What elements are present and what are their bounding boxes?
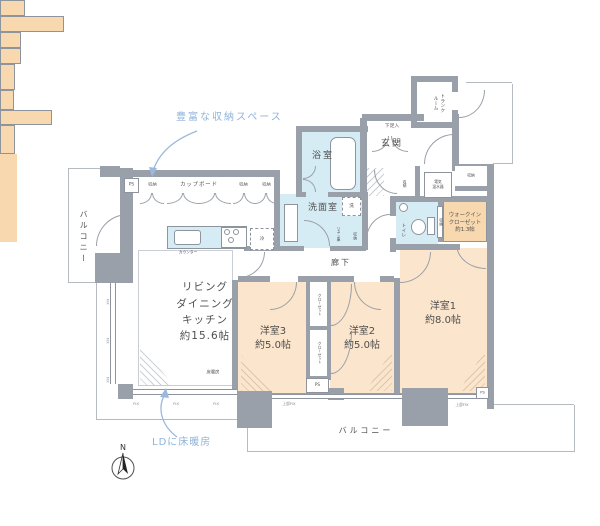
floor-heating-note: LDに床暖房: [152, 435, 230, 450]
wall-segment: [455, 186, 487, 191]
walkin-closet-floor: [443, 200, 487, 242]
balcony-door-arc: [96, 214, 128, 246]
water-heater-box: [424, 172, 452, 198]
hand-basin: [399, 203, 408, 212]
upper-fix-label: 上部FIX: [278, 402, 299, 408]
folding-door-arc: [255, 193, 266, 204]
annotation-overlay: [0, 0, 600, 526]
stove-burner: [228, 237, 234, 243]
compass-north-label: N: [117, 443, 129, 453]
trunk-room-wall: [411, 76, 417, 128]
wall-segment: [415, 166, 420, 200]
storage-note: 豊富な収納スペース: [176, 110, 292, 125]
folding-door-arc: [233, 193, 244, 204]
folding-door-arc: [167, 193, 183, 204]
wall-segment: [274, 172, 280, 250]
storage-box: [0, 48, 21, 64]
closet-frame: [306, 280, 310, 380]
shoe-cabinet-label: 下足入: [371, 121, 413, 131]
pipe-space-box: [306, 378, 329, 393]
balcony-bottom-label: バルコニー: [332, 424, 400, 437]
floor-plan: 床暖房: [0, 0, 600, 526]
compass-circle: [112, 457, 134, 479]
vanity-cabinet: [284, 204, 298, 242]
folding-door-arc: [183, 193, 199, 204]
folding-door-arc: [199, 193, 215, 204]
folding-door-arc: [152, 193, 164, 204]
trunk-room-wall: [452, 110, 458, 128]
storage-label: 収納: [258, 181, 276, 189]
wall-segment: [296, 126, 368, 132]
balcony-bottom-outline: [247, 451, 575, 452]
trunk-room-wall: [411, 76, 458, 82]
pillar: [95, 253, 133, 283]
wall-segment: [362, 194, 368, 250]
fix-label: FIX: [210, 402, 222, 408]
wall-segment: [394, 278, 400, 393]
folding-door-arc: [266, 193, 277, 204]
toilet-side-shelf: [437, 206, 443, 238]
closet-box: [0, 196, 17, 242]
balcony-bottom-outline: [574, 405, 575, 452]
wall-segment: [390, 196, 396, 216]
wall-segment: [100, 166, 120, 177]
fix-window-south-ldk: [133, 389, 237, 395]
wall-segment: [232, 280, 238, 393]
trunk-room-label: トランク ルーム: [424, 88, 453, 118]
hallway-label: 廊下: [325, 257, 357, 269]
building-outline: [512, 84, 513, 164]
shoe-cabinet-box: [0, 110, 52, 125]
storage-box: [0, 32, 21, 48]
balcony-left-label: バルコニー: [76, 194, 91, 280]
fix-label: FIX: [170, 402, 182, 408]
shoe-cabinet-door-arc: [391, 136, 408, 152]
fix-window-west: [110, 283, 116, 384]
pipe-space-box: [476, 387, 489, 399]
storage-box: [0, 125, 15, 154]
trunk-room-door-arc: [459, 90, 485, 118]
trunk-room-wall: [411, 122, 458, 128]
wall-segment: [118, 170, 280, 177]
wall-segment: [296, 192, 306, 197]
compass-needle-west: [118, 453, 123, 474]
wall-segment: [296, 126, 302, 196]
storage-box: [0, 0, 25, 16]
stove-burner: [233, 229, 239, 235]
folding-door-arc: [215, 193, 231, 204]
stove-burner: [224, 229, 230, 235]
wall-segment: [394, 244, 440, 250]
building-outline: [96, 283, 97, 420]
wall-segment: [487, 164, 494, 409]
wall-segment: [380, 276, 394, 282]
wall-segment: [360, 118, 367, 200]
balcony-bottom-outline: [493, 404, 574, 405]
linen-storage-box: [0, 64, 15, 90]
closet-label: クローゼット: [313, 292, 324, 318]
fix-label: FIX: [130, 402, 142, 408]
ldk-door-arc: [239, 252, 265, 278]
balcony-left-outline: [68, 168, 69, 283]
wall-segment: [330, 246, 366, 251]
building-outline: [96, 419, 237, 420]
storage-label: 収納: [235, 181, 253, 189]
shoe-cabinet-door-arc: [372, 136, 389, 152]
storage-label: 収納: [144, 181, 162, 189]
storage-box: [455, 166, 487, 186]
toilet-door-arc: [366, 214, 390, 240]
balcony-left-outline: [68, 282, 96, 283]
bathtub: [330, 137, 356, 190]
refrigerator-space: [250, 228, 274, 250]
wall-segment: [118, 384, 133, 399]
closet-label: クローゼット: [313, 339, 324, 368]
building-outline: [466, 82, 512, 83]
building-outline: [493, 163, 512, 164]
closet-box: [0, 154, 17, 196]
pillar: [237, 391, 272, 428]
compass-needle-east: [123, 453, 128, 474]
cupboard-label: カップボード: [170, 180, 228, 191]
floor-heating-area: [138, 250, 233, 386]
window-south-bedrooms: [272, 394, 402, 399]
washing-machine-space: [342, 197, 361, 216]
folding-door-arc: [244, 193, 255, 204]
pipe-space-box: [124, 178, 139, 193]
folding-door-arc: [140, 193, 152, 204]
pillar: [402, 388, 448, 426]
trunk-room-wall: [452, 76, 458, 92]
storage-label: 収納: [399, 175, 408, 193]
toilet-bowl: [411, 219, 426, 235]
upper-fix-label: 上部FIX: [451, 403, 472, 409]
closet-frame: [306, 326, 331, 330]
heating-note-arrow: [161, 394, 177, 437]
kitchen-sink: [174, 230, 201, 245]
entry-door-arc: [424, 134, 454, 164]
balcony-left-outline: [68, 168, 100, 169]
toilet-tank: [427, 217, 435, 235]
storage-note-arrow: [153, 131, 197, 171]
storage-box: [0, 90, 14, 110]
cupboard-box: [0, 16, 64, 32]
balcony-bottom-outline: [247, 427, 248, 452]
